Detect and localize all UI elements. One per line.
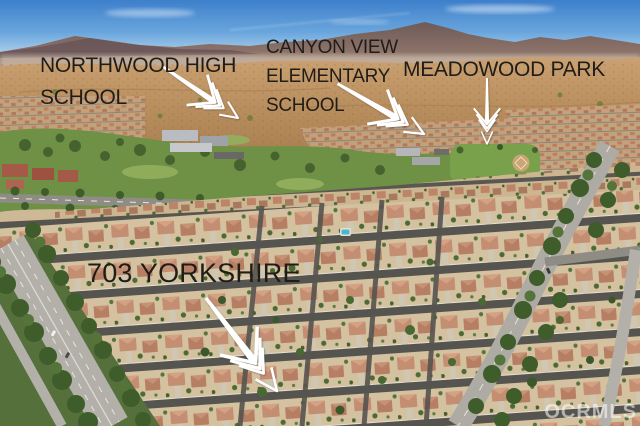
annotation-line: CANYON VIEW — [266, 33, 398, 62]
mls-watermark: OCRMLS — [544, 401, 637, 424]
annotation-line: MEADOWOOD PARK — [403, 58, 605, 82]
annotation-northwood-high-school: NORTHWOOD HIGH SCHOOL — [40, 50, 236, 114]
annotation-line: SCHOOL — [40, 82, 236, 114]
aerial-listing-photo: NORTHWOOD HIGH SCHOOL CANYON VIEW ELEMEN… — [0, 0, 640, 426]
annotation-line: 703 YORKSHIRE — [87, 258, 301, 288]
annotation-meadowood-park: MEADOWOOD PARK — [403, 58, 605, 82]
annotation-line: ELEMENTARY — [266, 62, 398, 91]
annotation-line: SCHOOL — [266, 91, 398, 120]
annotation-line: NORTHWOOD HIGH — [40, 50, 236, 82]
pool — [342, 230, 350, 235]
annotation-703-yorkshire: 703 YORKSHIRE — [87, 258, 301, 288]
annotation-canyon-view-elementary: CANYON VIEW ELEMENTARY SCHOOL — [266, 33, 398, 120]
